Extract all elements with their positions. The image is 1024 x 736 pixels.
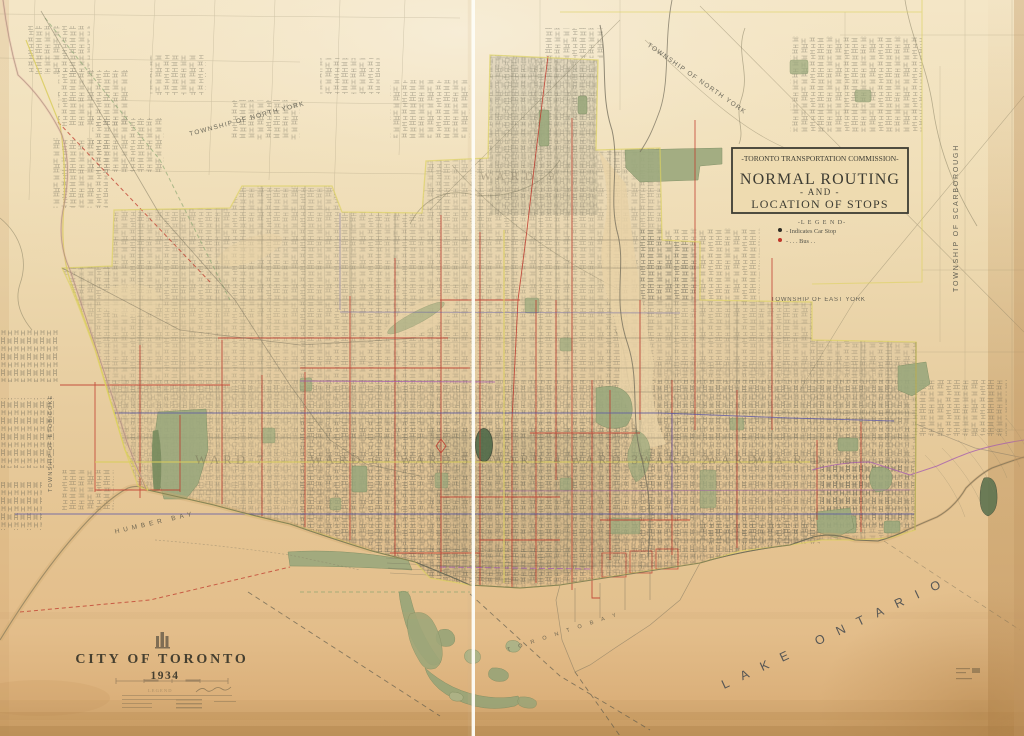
svg-text:-L E G E N D-: -L E G E N D- <box>798 220 846 226</box>
svg-text:-TORONTO TRANSPORTATION COMMIS: -TORONTO TRANSPORTATION COMMISSION- <box>741 154 899 163</box>
svg-text:TOWNSHIP OF EAST YORK: TOWNSHIP OF EAST YORK <box>771 297 866 303</box>
svg-text:LOCATION OF STOPS: LOCATION OF STOPS <box>751 197 889 211</box>
svg-text:L E G E N D: L E G E N D <box>148 688 172 693</box>
svg-text:TOWNSHIP OF SCARBOROUGH: TOWNSHIP OF SCARBOROUGH <box>953 144 960 292</box>
svg-text:NORMAL ROUTING: NORMAL ROUTING <box>740 171 900 188</box>
svg-text:WARD 9: WARD 9 <box>480 169 560 183</box>
svg-text:WARD 7: WARD 7 <box>195 452 267 467</box>
svg-text:WARD 5: WARD 5 <box>400 452 472 467</box>
svg-text:WARD 8: WARD 8 <box>753 452 861 467</box>
svg-text:TOWNSHIP OF ETOBICOKE: TOWNSHIP OF ETOBICOKE <box>48 395 54 492</box>
svg-text:- AND -: - AND - <box>800 187 840 197</box>
svg-text:- . . . Bus . .: - . . . Bus . . <box>786 238 816 245</box>
svg-text:CITY OF TORONTO: CITY OF TORONTO <box>75 652 248 667</box>
svg-text:WARD 4: WARD 4 <box>492 452 564 467</box>
svg-text:WARD 2: WARD 2 <box>640 452 712 467</box>
svg-text:WARD 3: WARD 3 <box>570 452 642 467</box>
svg-text:- Indicates Car Stop: - Indicates Car Stop <box>786 228 836 235</box>
svg-text:WARD 6: WARD 6 <box>310 452 382 467</box>
